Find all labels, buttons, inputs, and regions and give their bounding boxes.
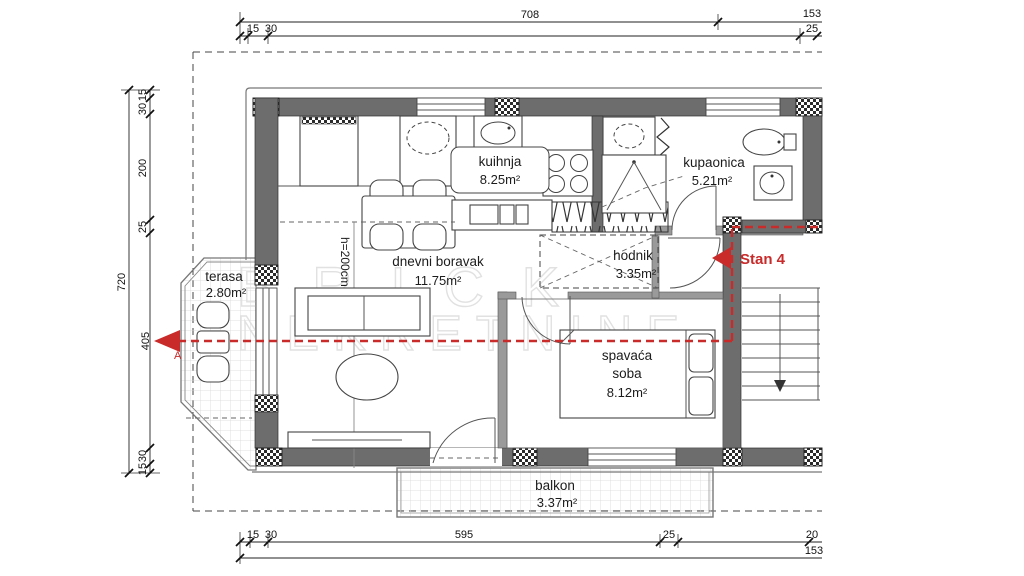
- dim-top-25: 25: [806, 23, 818, 35]
- dim-left-15b: 15: [137, 463, 149, 475]
- section-label: A: [174, 350, 182, 362]
- bathroom-window: [706, 98, 780, 116]
- dim-bot-595: 595: [455, 529, 473, 541]
- floor-plan-page: BRICK NEKRETNINE: [0, 0, 1024, 576]
- bathroom-door: [672, 186, 716, 230]
- room-area-bedroom: 8.12m²: [607, 385, 648, 400]
- room-name-balcony: balkon: [535, 478, 575, 493]
- counter-hatch-strip: [302, 117, 356, 124]
- dim-left-405: 405: [140, 332, 152, 350]
- kitchen-window: [417, 98, 485, 116]
- dim-left-25: 25: [137, 221, 149, 233]
- dim-left-30a: 30: [137, 103, 149, 115]
- dim-top-153: 153: [803, 8, 821, 20]
- room-area-balcony: 3.37m²: [537, 495, 578, 510]
- room-area-bathroom: 5.21m²: [692, 173, 733, 188]
- dining-table-set: [362, 180, 455, 250]
- dim-top-30: 30: [265, 23, 277, 35]
- dim-top-708: 708: [521, 9, 539, 21]
- floor-plan-drawing: BRICK NEKRETNINE: [0, 0, 1024, 576]
- washing-machine: [603, 117, 655, 155]
- room-area-terrace: 2.80m²: [206, 285, 247, 300]
- room-name-bedroom-2: soba: [612, 366, 642, 381]
- ticks-top: [236, 18, 821, 40]
- shower: [602, 155, 666, 213]
- sofa: [295, 288, 430, 336]
- room-name-kitchen: kuihnja: [479, 154, 522, 169]
- dim-bot-25: 25: [663, 529, 675, 541]
- room-name-bathroom: kupaonica: [683, 155, 745, 170]
- section-arrow: [154, 330, 180, 352]
- dimension-bottom: 15 30 595 25 20 153: [236, 529, 823, 564]
- dimension-top: 708 153 15 30 25: [236, 8, 822, 44]
- dim-left-15a: 15: [137, 89, 149, 101]
- right-margin: [823, 0, 1024, 576]
- unit-label: Stan 4: [740, 251, 786, 268]
- toilet: [743, 129, 796, 155]
- stove: [543, 150, 593, 196]
- kitchen-lower-counter: [452, 200, 552, 230]
- room-area-kitchen: 8.25m²: [480, 172, 521, 187]
- room-name-living: dnevni boravak: [392, 254, 484, 269]
- room-name-bedroom-1: spavaća: [602, 348, 653, 363]
- dim-bot-153: 153: [805, 545, 823, 557]
- dim-left-200: 200: [137, 159, 149, 177]
- dim-bot-20: 20: [806, 529, 818, 541]
- dim-left-720: 720: [116, 273, 128, 291]
- tv-bench: [288, 432, 430, 448]
- dim-top-15: 15: [247, 23, 259, 35]
- stairs: [742, 288, 820, 400]
- dim-left-30b: 30: [137, 450, 149, 462]
- entrance-door: [668, 238, 720, 288]
- dim-bot-15: 15: [247, 529, 259, 541]
- room-area-hall: 3.35m²: [616, 266, 657, 281]
- coffee-table: [336, 354, 398, 400]
- room-area-living: 11.75m²: [415, 273, 462, 288]
- unit-arrow: [712, 247, 731, 269]
- room-name-terrace: terasa: [205, 269, 243, 284]
- dim-bot-30: 30: [265, 529, 277, 541]
- room-name-hall: hodnik: [613, 248, 653, 263]
- height-note: h=200cm: [338, 237, 352, 287]
- dimension-left: 720 15 30 200 25 405 30 15: [116, 86, 160, 477]
- bedroom-window: [588, 448, 676, 466]
- bathroom-sink: [754, 166, 792, 200]
